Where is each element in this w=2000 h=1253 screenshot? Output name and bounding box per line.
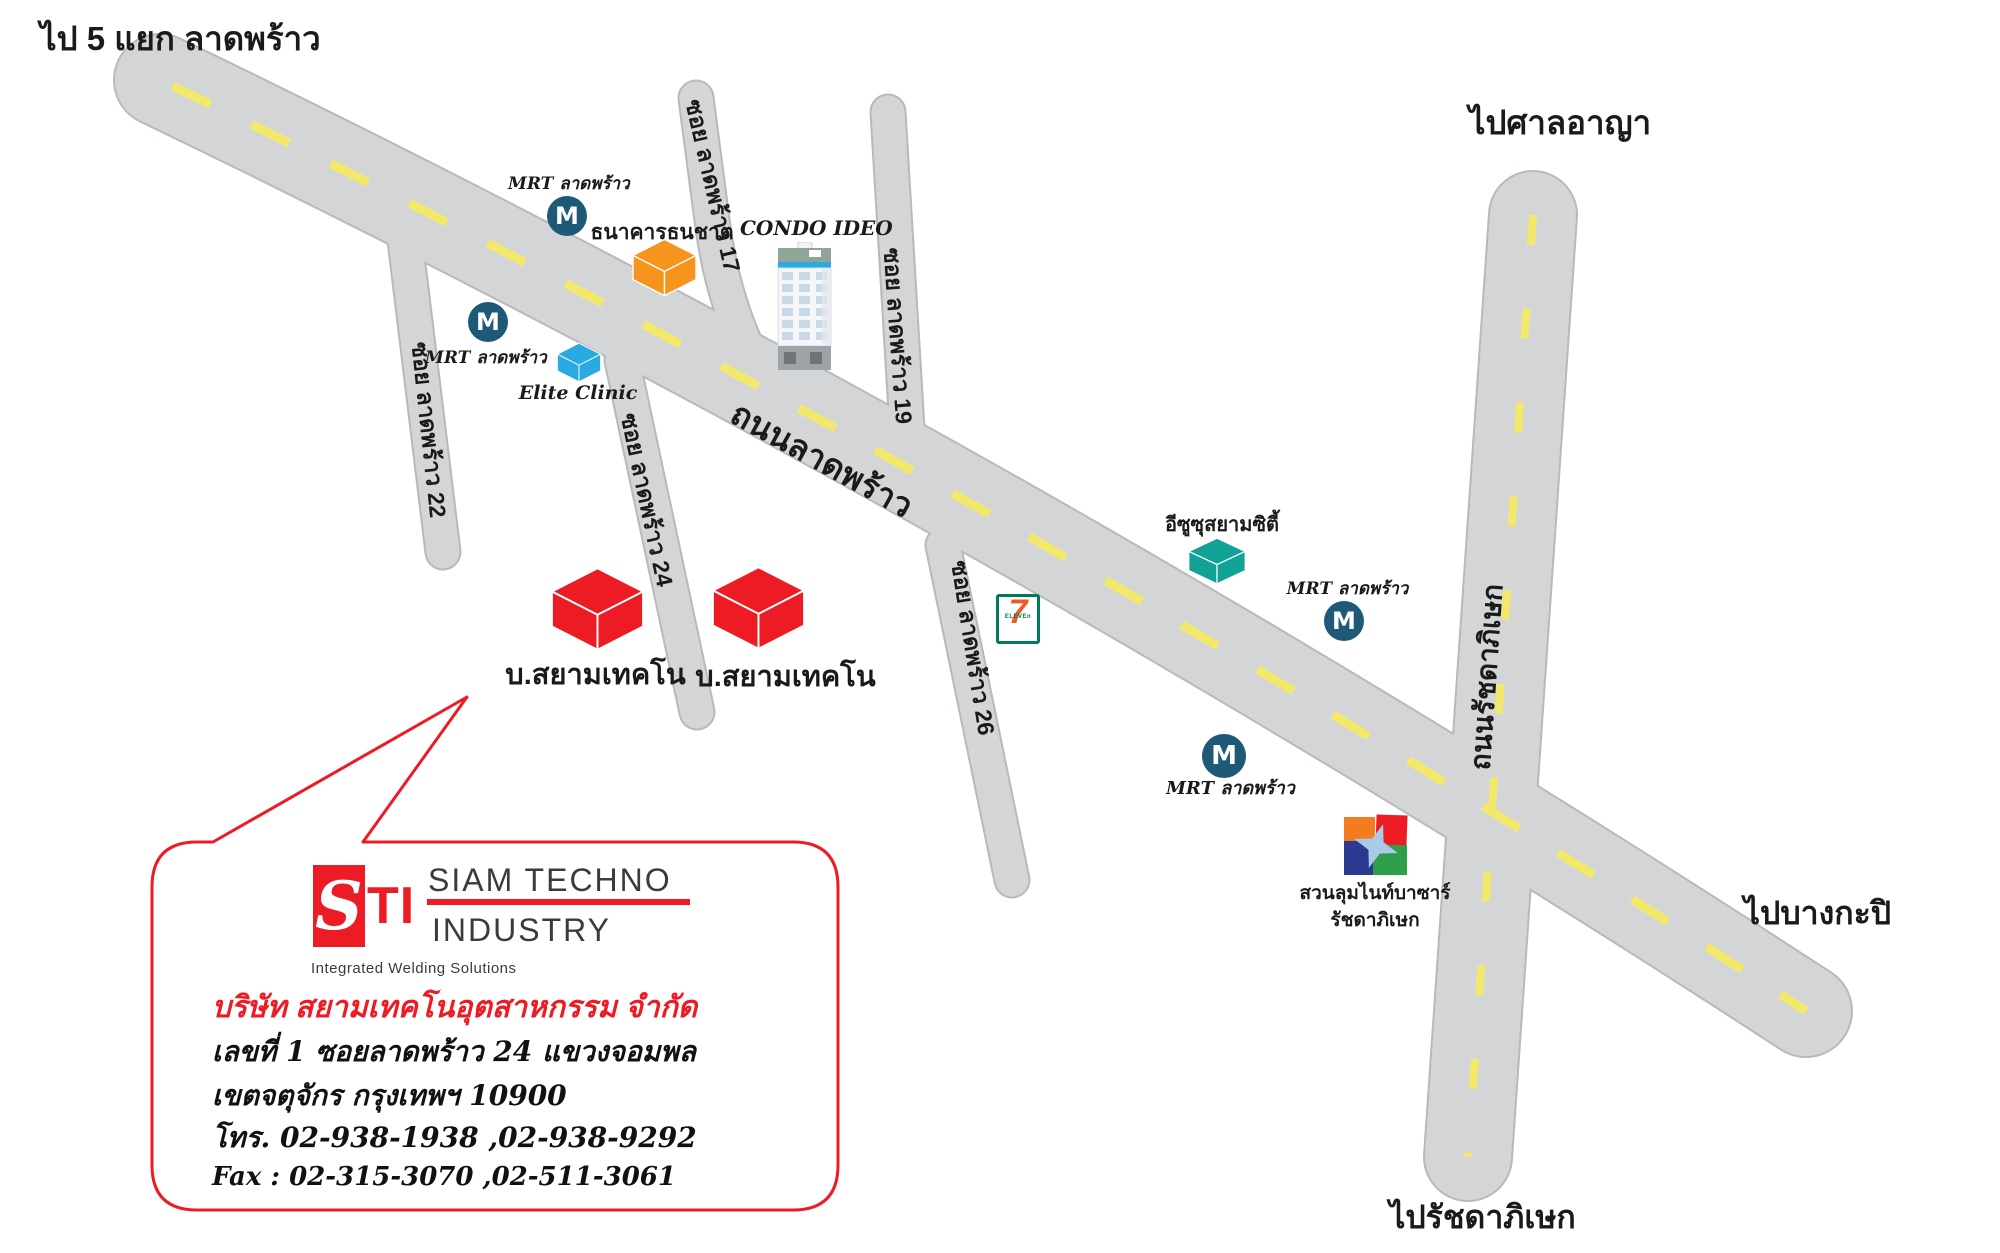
- direction-label-bangkapi: ไปบางกะปิ: [1735, 888, 1900, 939]
- route-map: ไป 5 แยก ลาดพร้าว ไปศาลอาญา ไปบางกะปิ ไป…: [0, 0, 2000, 1253]
- address-line-1: เลขที่ 1 ซอยลาดพร้าว 24 แขวงจอมพล: [212, 1030, 696, 1074]
- sti-logo-name-line2: INDUSTRY: [432, 912, 611, 949]
- isuzu-label: อีซูซุสยามซิตี้: [1147, 508, 1297, 540]
- clinic-building: [556, 342, 602, 383]
- mrt-label-3: MRT ลาดพร้าว: [1166, 773, 1291, 802]
- mrt-label-1: MRT ลาดพร้าว: [508, 170, 628, 197]
- direction-label-court: ไปศาลอาญา: [1455, 96, 1665, 149]
- company-building-label-right: บ.สยามเทคโน: [688, 653, 883, 699]
- clinic-label: Elite Clinic: [503, 382, 653, 404]
- fax-line: Fax : 02-315-3070 ,02-511-3061: [212, 1162, 676, 1192]
- company-name: บริษัท สยามเทคโนอุตสาหกรรม จำกัด: [212, 984, 697, 1031]
- sti-logo-icon: S: [313, 865, 365, 947]
- phone-line: โทร. 02-938-1938 ,02-938-9292: [212, 1116, 697, 1160]
- mrt-label-4: MRT ลาดพร้าว: [1285, 575, 1410, 602]
- mrt-icon-1: M: [547, 196, 587, 236]
- sti-logo-name-line1: SIAM TECHNO: [428, 862, 672, 899]
- seven-eleven-icon: 7 ELEVEn: [996, 594, 1040, 644]
- night-bazaar-label-line2: รัชดาภิเษก: [1290, 907, 1460, 934]
- direction-label-ratchada: ไปรัชดาภิเษก: [1385, 1192, 1580, 1243]
- condo-label: CONDO IDEO: [740, 216, 890, 240]
- night-bazaar-label-line1: สวนลุมไนท์บาซาร์: [1290, 880, 1460, 907]
- sti-logo-underline: [427, 899, 690, 905]
- condo-building: [776, 242, 833, 372]
- mrt-icon-3: M: [1202, 734, 1246, 778]
- company-building-label-left: บ.สยามเทคโน: [498, 651, 693, 697]
- sti-logo-ti: TI: [367, 876, 415, 936]
- seven-eleven-eleven: ELEVEn: [999, 614, 1037, 620]
- address-line-2: เขตจตุจักร กรุงเทพฯ 10900: [212, 1074, 567, 1118]
- direction-label-5way: ไป 5 แยก ลาดพร้าว: [40, 12, 321, 65]
- company-building-left: [549, 564, 646, 654]
- sti-logo-s: S: [315, 873, 363, 939]
- isuzu-building: [1184, 537, 1250, 585]
- mrt-icon-4: M: [1324, 601, 1364, 641]
- sti-logo-tagline: Integrated Welding Solutions: [311, 960, 517, 977]
- night-bazaar-icon: [1344, 815, 1408, 877]
- night-bazaar-label: สวนลุมไนท์บาซาร์ รัชดาภิเษก: [1290, 880, 1460, 934]
- mrt-icon-2: M: [468, 302, 508, 342]
- bank-label: ธนาคารธนชาต: [587, 216, 737, 249]
- seven-eleven-seven: 7: [999, 593, 1037, 632]
- mrt-label-2: MRT ลาดพร้าว: [425, 344, 545, 371]
- company-building-right: [710, 563, 807, 653]
